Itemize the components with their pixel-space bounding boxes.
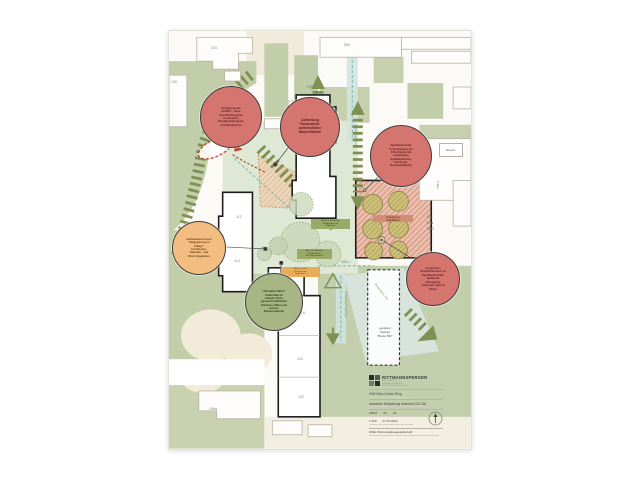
label-eg: EG: (427, 216, 433, 219)
building-number: 108 (306, 86, 312, 90)
building-number: 122 (298, 396, 304, 400)
plan-index: 04 (383, 411, 386, 415)
building-number: 104 (211, 47, 217, 51)
annotation-bubble-zufahrt: Verlegung derZufahrt - neueErschließung … (200, 86, 262, 148)
building-number: 120 (297, 358, 303, 362)
project-title: GWH Ben-Gurion-Ring (369, 392, 443, 396)
label-uebergang-ost: Übergang GL Ost (354, 125, 357, 147)
plan-number: 29010 (369, 411, 377, 415)
firm-logo-icon (369, 375, 380, 386)
building-number: 112 (236, 216, 242, 220)
kita-tree (365, 242, 383, 260)
annotation-bubble-schattenhecken: IntegrationSchattenhecken inSpiellandsch… (406, 252, 460, 306)
label-t-gar: T-Gar (436, 181, 439, 189)
building-number: 106 (171, 81, 177, 85)
area-box-wiese2: Wiese 2 (intensiv): Treffpunkt für alle … (297, 249, 332, 259)
road-bottomleft (169, 359, 264, 385)
firm-discipline: PROJEKTENTWICKLUNG (382, 385, 427, 388)
annotation-bubble-spiellandschaft: Spiellandschaftin Verbindung zurKiTa-Flä… (370, 125, 432, 187)
drawing-title: räumliche Zielplanung Innenhof 132-136 (369, 402, 443, 406)
plan-sheet: 104 50b 106 108 110 112 114 116 118 120 … (168, 30, 472, 450)
building-number: 114 (234, 260, 240, 264)
plan-sheet: A6 (393, 411, 397, 415)
annotation-bubble-pausenareal: AufwertungPausenareal:aufenthaltlicheWas… (280, 97, 340, 157)
annotation-bubble-vorzonen: Gebäudevorzonen"Begegnung imAlltag":Hoch… (172, 221, 226, 275)
label-planned-building: geplanter Neubau "Bunter Bär" (369, 327, 401, 338)
screenshot-canvas: 104 50b 106 108 110 112 114 116 118 120 … (0, 0, 640, 480)
kita-tree (389, 191, 409, 211)
label-kita: KiTa (427, 222, 433, 225)
kita-tree (363, 219, 383, 239)
building-50b (320, 37, 401, 57)
plan-scale: 1:200 (369, 419, 377, 423)
label-buergerhaus: Bürgerh. (439, 143, 463, 157)
north-arrow-icon (428, 411, 443, 426)
label-erweiterung-kita: Erweiterung KiTa-Fläche (373, 215, 413, 222)
annotation-bubble-mitte: "Attraktive Mitte":Aufenthalt imruhigen … (245, 273, 303, 331)
titleblock: RITTMANNSPERGER ARCHITEKTUR GENERALPLANU… (369, 375, 443, 436)
label-abg: ABG (427, 228, 434, 231)
label-uebergang-tiefgarage: Übergang Tiefgarage (344, 291, 347, 317)
area-box-wiese1: Wiese 1 (extensiv): Obstbäume und Blühwi… (311, 219, 350, 229)
client-name: GWH Wohnungsbaugesellschaft (369, 430, 443, 434)
kita-tree (363, 194, 383, 214)
label-muell: MÜLL (341, 261, 350, 264)
building-number: 106a (209, 408, 217, 412)
building-number: 50b (344, 44, 350, 48)
plan-date: 17.05.2024 (383, 419, 398, 423)
